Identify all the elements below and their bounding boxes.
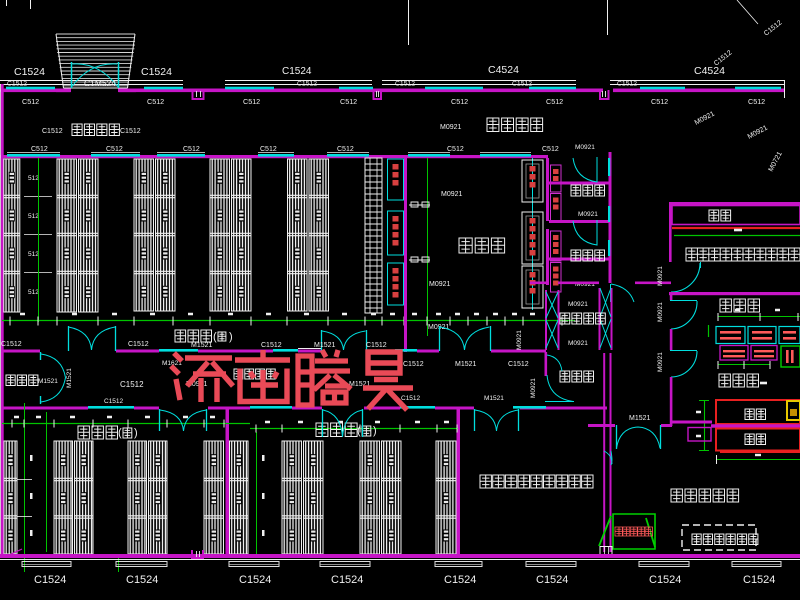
svg-text:M0921: M0921 bbox=[440, 124, 462, 131]
svg-text:C1512: C1512 bbox=[512, 81, 532, 88]
svg-text:C1512: C1512 bbox=[261, 342, 282, 349]
svg-text:): ) bbox=[134, 427, 138, 439]
svg-text:C512: C512 bbox=[31, 146, 48, 153]
svg-text:(: ( bbox=[118, 427, 122, 439]
svg-text:C1512: C1512 bbox=[42, 128, 63, 135]
svg-text:M1521: M1521 bbox=[314, 342, 336, 349]
svg-text:(: ( bbox=[213, 331, 217, 343]
svg-text:512: 512 bbox=[28, 175, 39, 182]
svg-text:C512: C512 bbox=[22, 97, 39, 106]
svg-text:): ) bbox=[229, 331, 233, 343]
svg-text:(: ( bbox=[357, 425, 361, 437]
svg-text:C512: C512 bbox=[748, 97, 765, 106]
svg-text:M1521: M1521 bbox=[66, 368, 73, 388]
svg-text:C1512: C1512 bbox=[403, 361, 424, 368]
svg-text:C1512: C1512 bbox=[7, 81, 27, 88]
svg-text:C1512: C1512 bbox=[128, 341, 149, 348]
svg-text:C512: C512 bbox=[340, 97, 357, 106]
svg-text:C1524: C1524 bbox=[331, 574, 363, 586]
svg-text:C1524: C1524 bbox=[536, 574, 568, 586]
svg-text:C1524: C1524 bbox=[126, 574, 158, 586]
svg-text:C512: C512 bbox=[260, 146, 277, 153]
svg-text:C4524: C4524 bbox=[694, 65, 725, 77]
svg-text:M0921: M0921 bbox=[575, 144, 595, 151]
svg-text:M1521: M1521 bbox=[38, 378, 58, 385]
svg-text:M1521: M1521 bbox=[629, 415, 651, 422]
svg-text:C512: C512 bbox=[546, 97, 563, 106]
svg-text:M1521: M1521 bbox=[455, 361, 477, 368]
svg-text:C512: C512 bbox=[106, 146, 123, 153]
svg-text:M1521: M1521 bbox=[484, 395, 504, 402]
svg-text:M1521: M1521 bbox=[191, 342, 213, 349]
svg-text:M0921: M0921 bbox=[578, 211, 598, 218]
svg-text:C512: C512 bbox=[183, 146, 200, 153]
svg-text:C512: C512 bbox=[147, 97, 164, 106]
svg-text:C512: C512 bbox=[542, 146, 559, 153]
svg-text:C512: C512 bbox=[337, 146, 354, 153]
svg-text:M0921: M0921 bbox=[657, 266, 664, 286]
svg-text:C512: C512 bbox=[451, 97, 468, 106]
svg-text:C512: C512 bbox=[447, 146, 464, 153]
svg-text:C512: C512 bbox=[243, 97, 260, 106]
svg-text:C1512: C1512 bbox=[366, 342, 387, 349]
svg-text:C1512: C1512 bbox=[508, 361, 529, 368]
svg-text:M0921: M0921 bbox=[428, 324, 450, 331]
svg-text:C1512: C1512 bbox=[395, 81, 415, 88]
svg-text:C1524: C1524 bbox=[14, 66, 45, 78]
svg-text:M0921: M0921 bbox=[516, 330, 523, 350]
svg-text:C1524: C1524 bbox=[34, 574, 66, 586]
svg-text:M0921: M0921 bbox=[657, 302, 664, 322]
svg-text:C4524: C4524 bbox=[488, 64, 519, 76]
svg-text:C1512: C1512 bbox=[120, 128, 141, 135]
svg-text:C1524: C1524 bbox=[444, 574, 476, 586]
svg-text:C1512: C1512 bbox=[1, 341, 22, 348]
svg-text:C1512: C1512 bbox=[617, 81, 637, 88]
svg-text:): ) bbox=[373, 425, 377, 437]
svg-text:C1M524: C1M524 bbox=[84, 78, 116, 88]
svg-text:C1524: C1524 bbox=[141, 66, 172, 78]
svg-text:C1524: C1524 bbox=[649, 574, 681, 586]
svg-text:C1512: C1512 bbox=[104, 398, 124, 405]
svg-text:M0921: M0921 bbox=[429, 281, 451, 288]
svg-text:C1512: C1512 bbox=[401, 395, 421, 402]
svg-text:C1524: C1524 bbox=[282, 66, 312, 77]
svg-text:M0921: M0921 bbox=[568, 301, 588, 308]
svg-text:512: 512 bbox=[28, 213, 39, 220]
svg-text:M0921: M0921 bbox=[568, 340, 588, 347]
svg-text:C1524: C1524 bbox=[743, 574, 775, 586]
svg-text:512: 512 bbox=[28, 251, 39, 258]
svg-text:C1512: C1512 bbox=[120, 380, 144, 389]
svg-text:M0921: M0921 bbox=[441, 191, 463, 198]
svg-text:C1524: C1524 bbox=[239, 574, 271, 586]
svg-text:C1512: C1512 bbox=[297, 81, 317, 88]
svg-text:512: 512 bbox=[28, 289, 39, 296]
svg-text:M0921: M0921 bbox=[657, 352, 664, 372]
svg-text:C512: C512 bbox=[651, 97, 668, 106]
svg-text:M0921: M0921 bbox=[530, 378, 537, 398]
